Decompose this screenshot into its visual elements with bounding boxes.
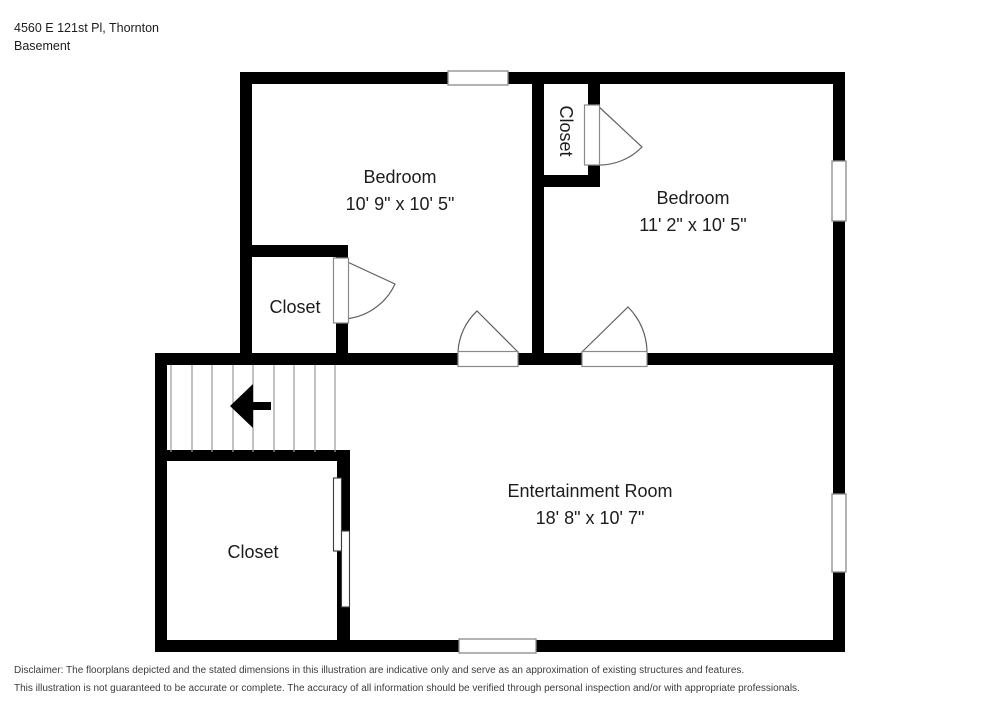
door-arc-closet-mid	[341, 259, 395, 319]
stairs-group	[167, 365, 337, 452]
wall-left-upper	[240, 72, 252, 365]
door-closet-top	[585, 105, 600, 165]
door-arc-bedroom-right	[582, 307, 647, 352]
door-closet-mid	[334, 258, 349, 323]
door-arc-bedroom-left	[458, 311, 518, 352]
bedroom-right-dimensions: 11' 2" x 10' 5"	[639, 215, 746, 235]
door-arc-closet-top	[597, 105, 642, 165]
wall-top	[240, 72, 845, 84]
entertainment-room-name: Entertainment Room	[507, 481, 672, 501]
closet-bottom-name: Closet	[227, 542, 278, 562]
bedroom-left-name: Bedroom	[363, 167, 436, 187]
window-top-wall	[448, 71, 508, 85]
entertainment-room-dimensions: 18' 8" x 10' 7"	[536, 508, 645, 528]
door-bedroom-left	[458, 352, 518, 367]
wall-bedroom-divider	[532, 84, 544, 365]
sliding-door-panel-1	[334, 478, 342, 551]
disclaimer-line-2: This illustration is not guaranteed to b…	[14, 680, 800, 698]
bedroom-left-dimensions: 10' 9" x 10' 5"	[346, 194, 455, 214]
window-bottom-wall	[459, 639, 536, 653]
door-bedroom-right	[582, 352, 647, 367]
disclaimer-line-1: Disclaimer: The floorplans depicted and …	[14, 662, 800, 680]
closet-mid-name: Closet	[269, 297, 320, 317]
bedroom-right-name: Bedroom	[656, 188, 729, 208]
closet-top-name: Closet	[556, 105, 576, 156]
wall-left-lower	[155, 353, 167, 652]
wall-closet-mid-top	[240, 245, 348, 257]
disclaimer: Disclaimer: The floorplans depicted and …	[14, 662, 800, 698]
window-entertainment-right-wall	[832, 494, 846, 572]
sliding-door-panel-2	[342, 531, 350, 607]
floor-plan: Bedroom 10' 9" x 10' 5" Bedroom 11' 2" x…	[0, 0, 1000, 707]
window-bedroom-right-wall	[832, 161, 846, 221]
